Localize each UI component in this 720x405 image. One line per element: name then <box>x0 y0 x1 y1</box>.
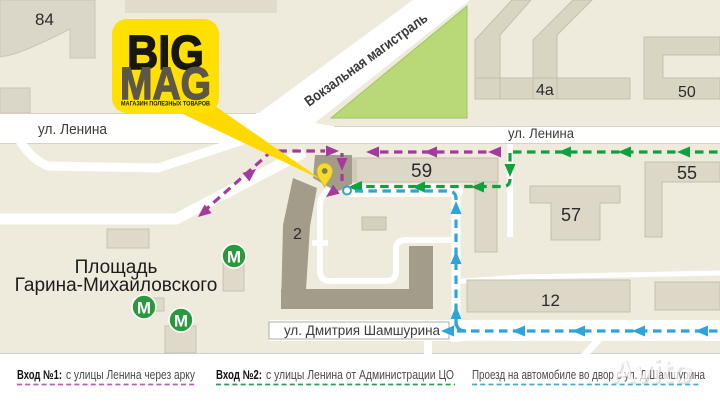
svg-text:12: 12 <box>541 291 560 310</box>
svg-text:ул. Дмитрия Шамшурина: ул. Дмитрия Шамшурина <box>284 323 440 338</box>
svg-text:84: 84 <box>35 10 54 29</box>
svg-text:ул. Ленина: ул. Ленина <box>508 125 574 141</box>
svg-text:Вход №1:: Вход №1: <box>17 368 62 382</box>
svg-text:55: 55 <box>677 163 697 183</box>
svg-text:Вход №2:: Вход №2: <box>216 368 262 382</box>
svg-text:с улицы Ленина от Администрац: с улицы Ленина от Администрации ЦО <box>266 368 454 382</box>
svg-text:МАГАЗИН ПОЛЕЗНЫХ ТОВАРОВ: МАГАЗИН ПОЛЕЗНЫХ ТОВАРОВ <box>121 102 211 108</box>
svg-text:2: 2 <box>293 226 302 243</box>
svg-text:Гарина-Михайловского: Гарина-Михайловского <box>15 275 218 296</box>
svg-text:50: 50 <box>678 84 696 101</box>
svg-text:М: М <box>227 248 241 267</box>
svg-text:57: 57 <box>561 205 581 225</box>
svg-text:М: М <box>174 312 188 331</box>
svg-text:Avito: Avito <box>611 352 692 389</box>
svg-text:М: М <box>137 299 151 318</box>
svg-text:59: 59 <box>411 161 432 182</box>
svg-text:с улицы Ленина через арку: с улицы Ленина через арку <box>66 368 196 382</box>
svg-text:4a: 4a <box>536 82 554 99</box>
svg-text:ул. Ленина: ул. Ленина <box>38 121 108 138</box>
